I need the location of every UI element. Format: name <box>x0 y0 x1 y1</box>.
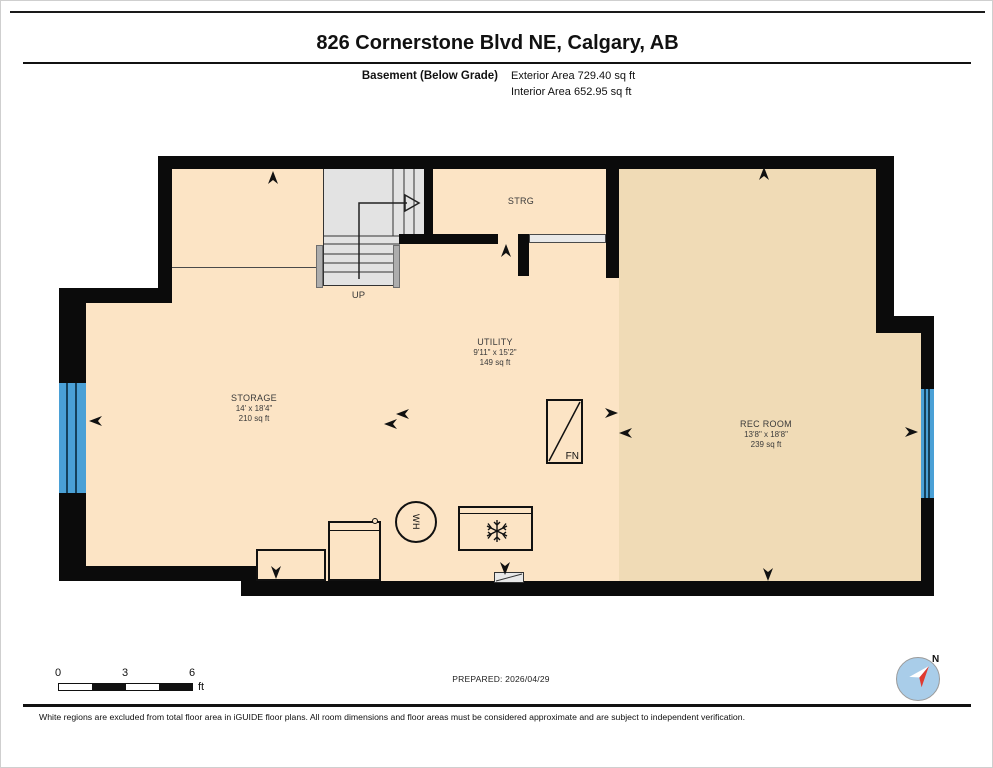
door-arrow-counter-icon <box>271 565 281 579</box>
window-right <box>921 389 934 498</box>
furnace-label: FN <box>566 451 579 462</box>
interior-area-label: Interior Area 652.95 sq ft <box>511 86 631 98</box>
opening-arrow-storage-a-icon <box>384 419 398 429</box>
scale-tick-3: 3 <box>118 667 132 679</box>
scale-bar <box>58 683 193 691</box>
furnace-box: FN <box>546 399 583 464</box>
wall-left-upper <box>158 156 172 303</box>
disclaimer-text: White regions are excluded from total fl… <box>39 712 969 722</box>
scale-tick-6: 6 <box>185 667 199 679</box>
floorplan-page: 826 Cornerstone Blvd NE, Calgary, AB Bas… <box>0 0 993 768</box>
freezer-box <box>458 506 533 551</box>
opening-arrow-storage-b-icon <box>396 409 410 419</box>
scale-tick-0: 0 <box>51 667 65 679</box>
prepared-date: PREPARED: 2026/04/29 <box>401 674 601 684</box>
floor-upper-left-room <box>172 169 323 303</box>
scale-unit-label: ft <box>198 681 204 693</box>
counter-box <box>256 549 326 581</box>
wall-divider-rec-room <box>606 156 619 278</box>
page-title: 826 Cornerstone Blvd NE, Calgary, AB <box>1 32 993 55</box>
window-left <box>59 383 86 493</box>
wall-stairs-right <box>424 169 433 239</box>
door-arrow-left-window-icon <box>89 416 103 426</box>
header-divider <box>23 62 971 64</box>
stair-treads-and-direction <box>323 169 424 289</box>
wall-right-above-window <box>921 333 934 389</box>
door-arrow-right-window-icon <box>904 427 918 437</box>
wall-right-below-window <box>921 498 934 596</box>
stairs-up-label: UP <box>331 290 386 301</box>
opening-arrow-rec-b-icon <box>619 428 633 438</box>
washer-box <box>328 521 381 581</box>
washer-knob-icon <box>372 518 378 524</box>
floor-rec-room-lower <box>619 333 921 581</box>
wall-right-step <box>876 316 934 333</box>
wall-below-strg-left <box>399 234 498 244</box>
interior-partition-line <box>172 267 316 268</box>
room-label-utility: UTILITY 9'11" x 15'2" 149 sq ft <box>435 337 555 368</box>
wall-bottom-left <box>59 566 256 581</box>
water-heater-circle: WH <box>395 501 437 543</box>
wall-left-step <box>59 288 172 303</box>
wall-right-upper <box>876 156 894 333</box>
door-arrow-strg-icon <box>501 244 511 258</box>
room-label-strg: STRG <box>471 196 571 207</box>
opening-arrow-rec-a-icon <box>604 408 618 418</box>
page-top-border <box>10 11 985 13</box>
footer-divider <box>23 704 971 707</box>
door-arrow-rec-top-icon <box>759 167 769 181</box>
snowflake-icon <box>485 518 509 544</box>
water-heater-label: WH <box>411 514 421 530</box>
floor-name-label: Basement (Below Grade) <box>228 70 498 82</box>
exterior-area-label: Exterior Area 729.40 sq ft <box>511 70 635 82</box>
window-interior-strg <box>529 234 606 243</box>
room-label-storage: STORAGE 14' x 18'4" 210 sq ft <box>194 393 314 424</box>
wall-top <box>158 156 894 169</box>
stair-rail-post-left <box>316 245 323 288</box>
door-arrow-upper-left-icon <box>268 171 278 185</box>
wall-left-above-window <box>59 303 86 383</box>
compass-north-label: N <box>932 654 939 665</box>
door-arrow-panel-icon <box>500 561 510 575</box>
door-arrow-rec-bottom-icon <box>763 567 773 581</box>
room-label-rec-room: REC ROOM 13'8" x 18'8" 239 sq ft <box>706 419 826 450</box>
wall-bottom-main <box>241 581 934 596</box>
stair-rail-post-right <box>393 245 400 288</box>
floor-rec-room-upper <box>619 169 876 333</box>
wall-stub-below-strg <box>518 234 529 276</box>
